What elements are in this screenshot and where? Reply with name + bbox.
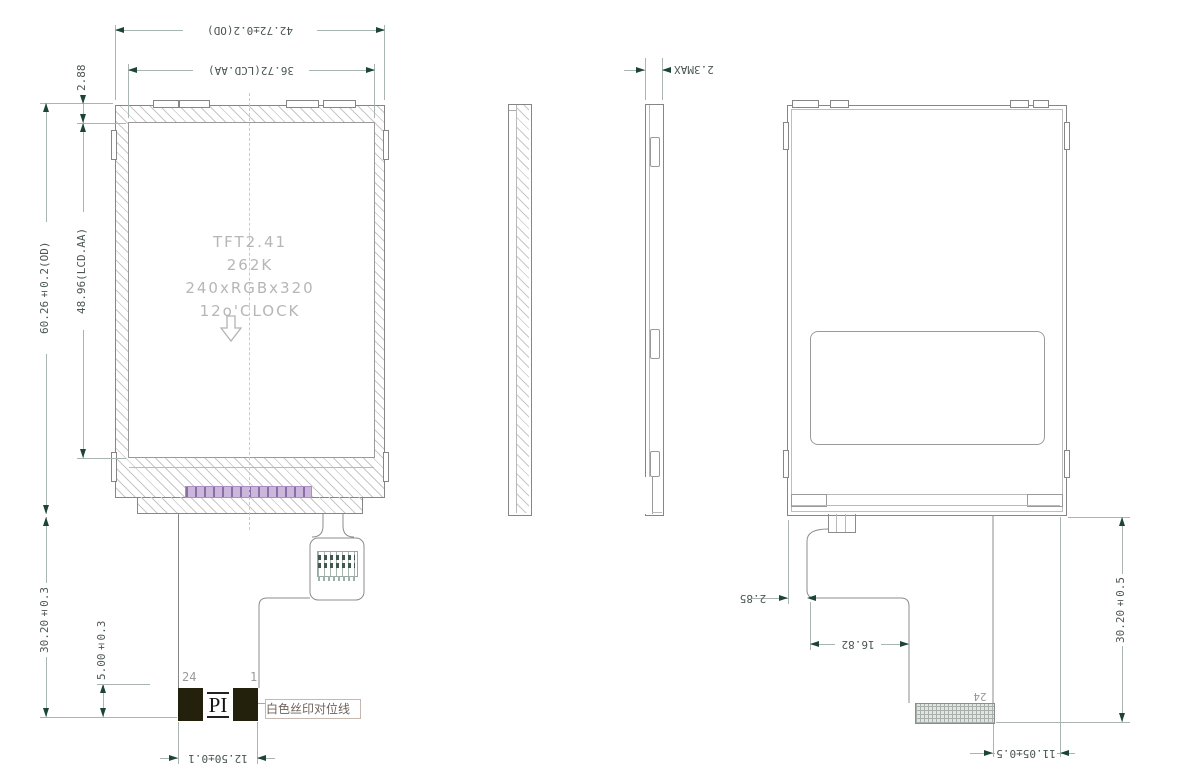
lcd-mechanical-drawing: TFT2.41 262K 240xRGBx320 12o'CLOCK PI 24… (0, 0, 1180, 783)
dim-arrow (1119, 517, 1125, 526)
dim-arrow (80, 95, 86, 104)
dim-arrow (900, 641, 909, 647)
screen-spec-line: TFT2.41 (160, 231, 340, 254)
front-top-tab (179, 100, 210, 108)
front-side-bump (383, 452, 389, 482)
dim-arrow (100, 684, 106, 693)
ext-line (996, 722, 1130, 723)
dim-aa-height: 48.96(LCD.AA) (76, 212, 90, 330)
dim-arrow (43, 517, 49, 526)
dim-fpc-edge-offset: 2.85 (735, 592, 771, 604)
ext-line (788, 520, 789, 604)
fpc-outline (170, 510, 380, 700)
dim-stiffener-width: 12.50±0.1 (179, 752, 257, 764)
fpc-component-pads (318, 563, 355, 568)
dim-arrow (257, 755, 266, 761)
side-clip (650, 451, 660, 477)
ext-line (40, 103, 113, 104)
ext-line (662, 58, 663, 100)
dim-arrow (779, 595, 788, 601)
front-top-tab (153, 100, 179, 108)
fpc-component-pads (318, 555, 355, 560)
back-side-bump (1064, 122, 1070, 150)
back-pin-number: 24 (972, 690, 988, 702)
dim-arrow (43, 103, 49, 112)
screen-spec-line: 262K (160, 254, 340, 277)
front-side-bump (383, 130, 389, 160)
dim-arrow (1060, 750, 1069, 756)
front-side-bump (111, 130, 117, 160)
viewing-direction-arrow-icon (220, 315, 242, 343)
dim-arrow (80, 114, 86, 123)
front-top-tab (286, 100, 319, 108)
back-top-tab (830, 100, 849, 108)
side-section-glass-hatch (517, 105, 529, 513)
back-side-bump (1064, 450, 1070, 478)
ext-line (115, 25, 116, 100)
ext-line (40, 717, 177, 718)
front-top-tab (323, 100, 356, 108)
ext-line (384, 25, 385, 100)
dim-arrow (984, 750, 993, 756)
ext-line (1060, 517, 1061, 757)
dim-arrow (128, 67, 137, 73)
dim-arrow (115, 27, 124, 33)
side-clip (650, 137, 660, 167)
ext-line (645, 58, 646, 100)
back-side-bump (783, 450, 789, 478)
dim-arrow (810, 641, 819, 647)
screen-spec-text: TFT2.41 262K 240xRGBx320 12o'CLOCK (160, 231, 340, 323)
dim-od-height: 60.26±0.2(OD) (39, 222, 53, 354)
dim-arrow (366, 67, 375, 73)
silkscreen-note: 白色丝印对位线 (265, 699, 361, 719)
silkscreen-alignment-mark: PI (203, 688, 233, 721)
dim-arrow (43, 505, 49, 514)
dim-arrow (376, 27, 385, 33)
stiffener-label: PI (207, 692, 230, 718)
dim-arrow (807, 595, 816, 601)
back-frame-inner (791, 109, 1063, 512)
side-clip (650, 329, 660, 359)
fpc-component-labels (318, 576, 356, 581)
screen-spec-line: 12o'CLOCK (160, 300, 340, 323)
ext-line (97, 684, 150, 685)
side-section-top-step (509, 105, 516, 111)
dim-arrow (43, 708, 49, 717)
dim-border-top: 2.88 (76, 62, 90, 94)
side-bottom-line (652, 512, 662, 513)
back-cutout (810, 331, 1045, 445)
dim-arrow (636, 67, 645, 73)
back-bottom-line (792, 494, 1060, 495)
back-fpc-connector (915, 703, 995, 724)
dim-fpc-length-front: 30.20±0.3 (39, 583, 53, 657)
dim-fpc-length-back: 30.20±0.5 (1115, 574, 1129, 646)
dim-stiffener-height: 5.00±0.3 (96, 618, 110, 682)
dim-connector-offset: 11.05±0.5 (995, 747, 1057, 759)
back-side-bump (783, 122, 789, 150)
ext-line (77, 458, 126, 459)
dim-arrow (100, 708, 106, 717)
pin-number-last: 1 (250, 670, 257, 684)
dim-aa-width: 36.72(LCD.AA) (193, 64, 309, 76)
pin-number-first: 24 (182, 670, 196, 684)
dim-arrow (80, 449, 86, 458)
screen-spec-line: 240xRGBx320 (160, 277, 340, 300)
back-top-tab (792, 100, 819, 108)
front-seal-line (129, 467, 374, 468)
front-side-bump (111, 452, 117, 482)
dim-arrow (80, 123, 86, 132)
back-top-tab (1033, 100, 1049, 108)
side-bottom-notch (644, 477, 653, 514)
dim-arrow (169, 755, 178, 761)
dim-od-width: 42.72±0.2(OD) (183, 24, 317, 36)
dim-arrow (1119, 713, 1125, 722)
dim-thickness: 2.3MAX (668, 63, 720, 75)
back-top-tab (1010, 100, 1029, 108)
dim-fpc-step-width: 16.82 (835, 638, 881, 650)
